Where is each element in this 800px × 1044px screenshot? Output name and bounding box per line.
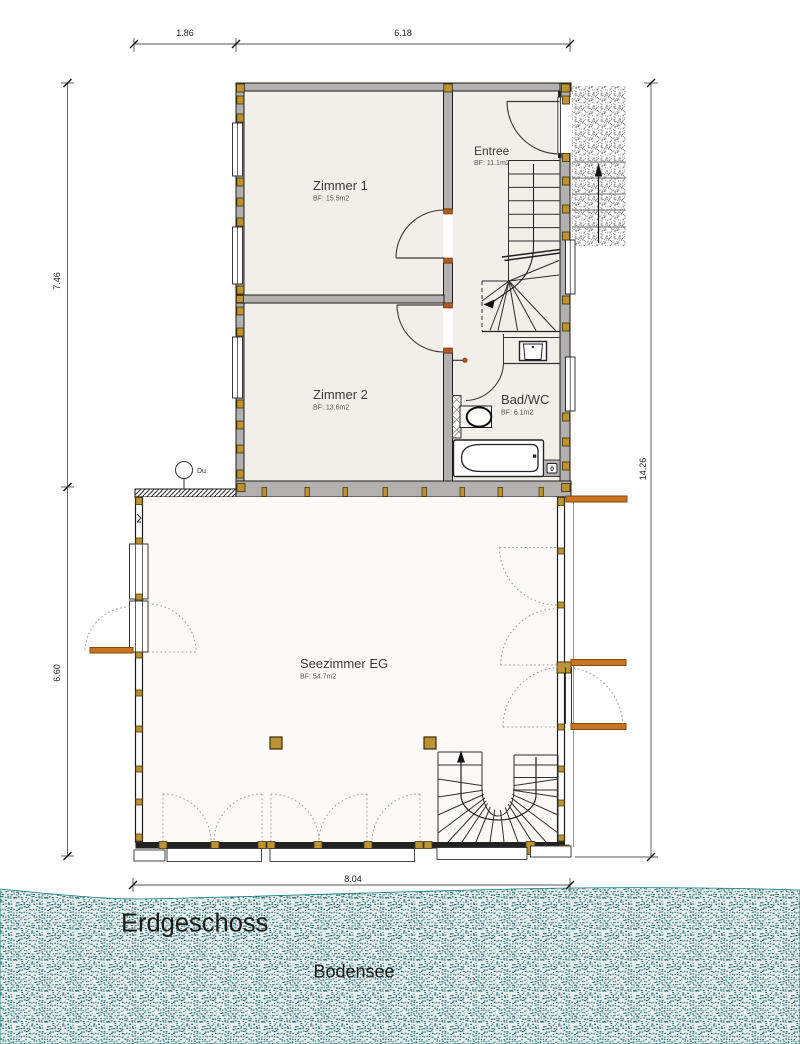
svg-text:Bad/WC: Bad/WC — [501, 392, 549, 407]
svg-text:BF: 15.5m2: BF: 15.5m2 — [313, 196, 349, 203]
svg-text:Du: Du — [197, 468, 206, 475]
svg-text:BF: 6.1m2: BF: 6.1m2 — [501, 410, 533, 417]
svg-text:Seezimmer EG: Seezimmer EG — [300, 656, 388, 671]
svg-text:Zimmer 2: Zimmer 2 — [313, 387, 368, 402]
svg-text:Zimmer 1: Zimmer 1 — [313, 178, 368, 193]
svg-text:6.60: 6.60 — [52, 664, 62, 682]
svg-text:Bodensee: Bodensee — [314, 962, 395, 982]
svg-text:Erdgeschoss: Erdgeschoss — [121, 910, 268, 938]
svg-text:1.86: 1.86 — [176, 28, 194, 38]
svg-text:0: 0 — [550, 466, 554, 473]
svg-text:8.04: 8.04 — [344, 874, 362, 884]
svg-text:6.18: 6.18 — [394, 28, 412, 38]
svg-text:BF: 54.7m2: BF: 54.7m2 — [300, 674, 336, 681]
svg-text:BF: 13.6m2: BF: 13.6m2 — [313, 405, 349, 412]
svg-text:BF: 11.1m2: BF: 11.1m2 — [474, 160, 510, 167]
svg-text:7.46: 7.46 — [52, 272, 62, 290]
svg-text:Entree: Entree — [474, 144, 510, 158]
svg-text:14.26: 14.26 — [638, 458, 648, 481]
